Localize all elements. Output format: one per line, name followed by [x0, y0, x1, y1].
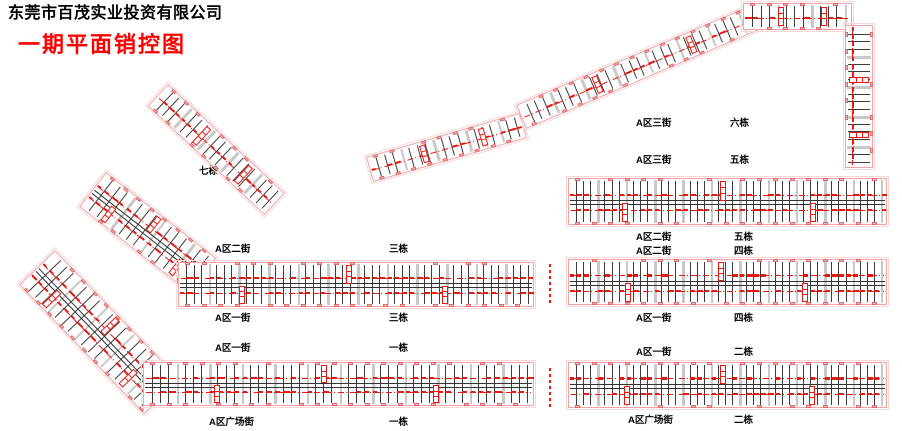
label-street-a3-row5: A区三街 [636, 152, 671, 166]
label-street-a2-row5: A区二街 [636, 229, 671, 243]
strip-building-2-east [568, 362, 887, 408]
floor-plan-canvas: 东莞市百茂实业投资有限公司 一期平面销控图 七栋 A区二街 三栋 A区一街 三栋… [0, 0, 902, 431]
label-street-a1-row2: A区一街 [636, 344, 671, 358]
strip-building-4-east [568, 259, 887, 305]
label-building-4-bottom: 四栋 [734, 310, 753, 324]
label-street-a2-row3: A区二街 [215, 241, 250, 255]
strip-building-5-4-east [568, 178, 887, 225]
label-building-2-top: 二栋 [734, 344, 753, 358]
label-building-1-bottom: 一栋 [389, 414, 408, 428]
match-line-marker-lower [549, 365, 551, 407]
label-building-5-east: 五栋 [734, 229, 753, 243]
strip-building-7 [148, 84, 285, 215]
label-street-a3-row6: A区三街 [636, 115, 671, 129]
label-street-a1-row3: A区一街 [215, 310, 250, 324]
strip-building-3-horizontal [178, 262, 534, 307]
label-street-a1-row4: A区一街 [636, 310, 671, 324]
label-building-5: 五栋 [730, 152, 749, 166]
label-building-3-top: 三栋 [389, 241, 408, 255]
strip-building-1-horizontal [143, 362, 534, 406]
label-street-plaza-row2: A区广场街 [628, 412, 673, 426]
label-building-6: 六栋 [730, 115, 749, 129]
strip-building-5-east-wing [845, 25, 873, 168]
strip-building-6-diagonal-b [516, 5, 762, 129]
strip-building-6-diagonal-a [366, 113, 527, 182]
label-building-3-bottom: 三栋 [389, 310, 408, 324]
label-building-1-top: 一栋 [389, 340, 408, 354]
label-street-a1-row1: A区一街 [215, 340, 250, 354]
match-line-marker-upper [549, 262, 551, 303]
label-street-a2-row4: A区二街 [636, 243, 671, 257]
label-building-2-bottom: 二栋 [734, 412, 753, 426]
label-building-4-top: 四栋 [734, 243, 753, 257]
strip-building-6-north [743, 3, 852, 30]
page-title: 一期平面销控图 [18, 27, 186, 59]
label-street-plaza-row1: A区广场街 [209, 414, 254, 428]
company-name: 东莞市百茂实业投资有限公司 [8, 4, 223, 24]
